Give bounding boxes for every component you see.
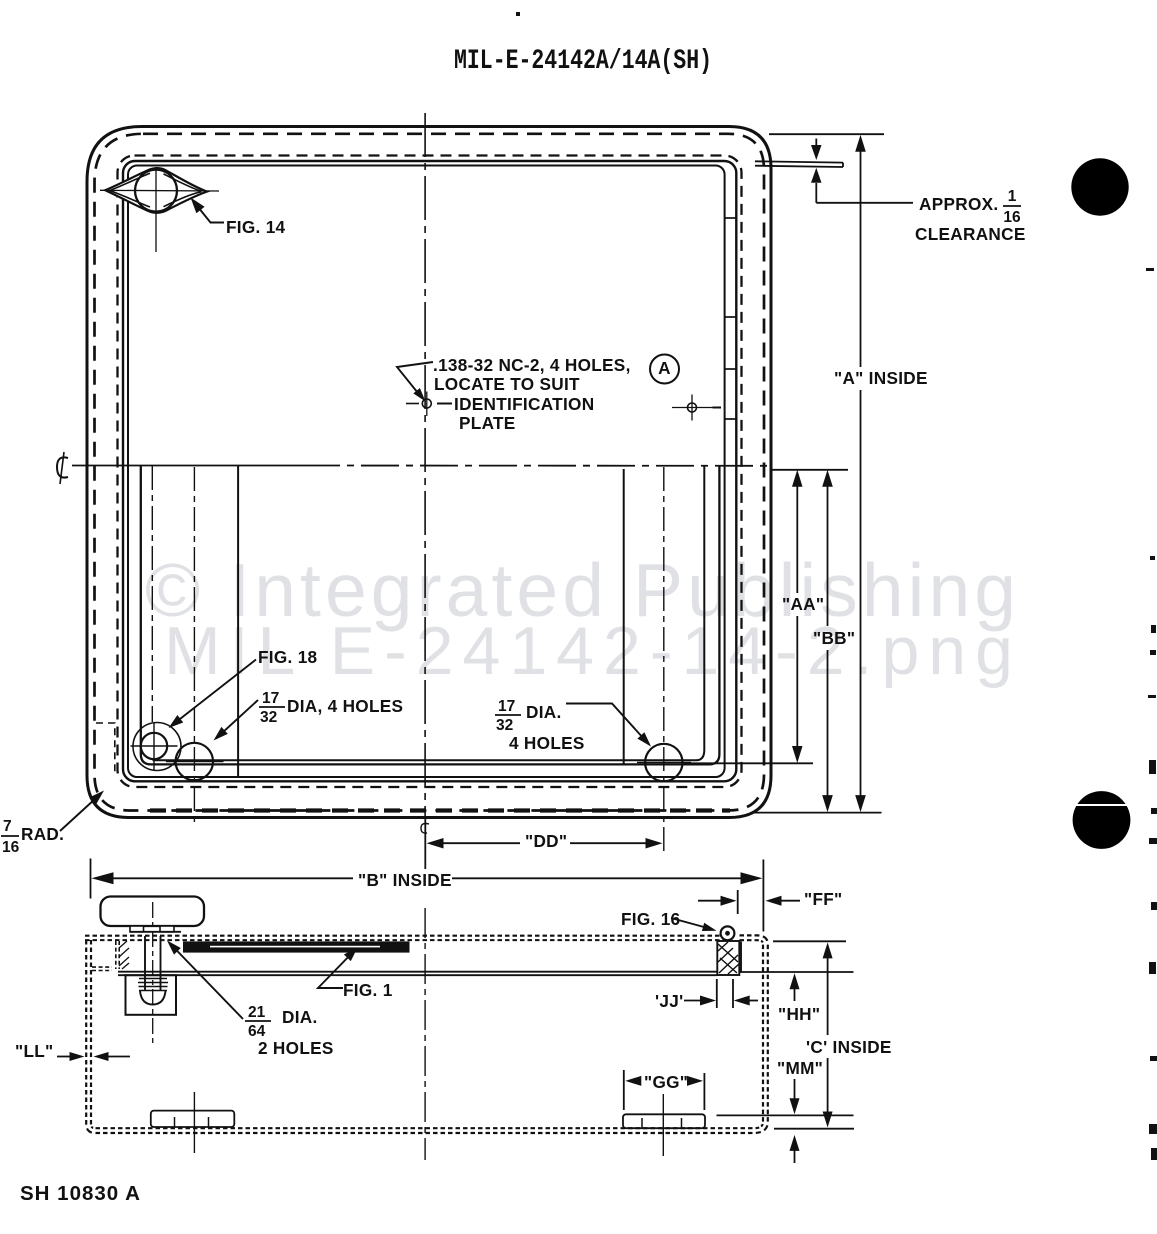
svg-text:CLEARANCE: CLEARANCE bbox=[915, 224, 1026, 244]
svg-text:32: 32 bbox=[496, 717, 513, 734]
svg-text:"AA": "AA" bbox=[782, 594, 824, 614]
svg-text:IDENTIFICATION: IDENTIFICATION bbox=[454, 394, 594, 414]
svg-text:.138-32 NC-2, 4 HOLES,: .138-32 NC-2, 4 HOLES, bbox=[433, 355, 631, 375]
svg-text:"DD": "DD" bbox=[525, 831, 567, 851]
svg-text:17: 17 bbox=[262, 690, 279, 707]
svg-text:RAD.: RAD. bbox=[21, 824, 64, 844]
svg-text:FIG. 14: FIG. 14 bbox=[226, 217, 286, 237]
svg-text:APPROX.: APPROX. bbox=[919, 194, 998, 214]
svg-text:DIA.: DIA. bbox=[282, 1007, 318, 1027]
svg-text:'C' INSIDE: 'C' INSIDE bbox=[806, 1037, 892, 1057]
svg-text:21: 21 bbox=[248, 1004, 266, 1021]
svg-text:"FF": "FF" bbox=[804, 889, 843, 909]
svg-text:7: 7 bbox=[3, 818, 12, 835]
svg-text:A: A bbox=[658, 358, 671, 378]
svg-text:"A" INSIDE: "A" INSIDE bbox=[834, 368, 928, 388]
svg-text:PLATE: PLATE bbox=[459, 413, 516, 433]
svg-text:1: 1 bbox=[1008, 188, 1017, 205]
svg-text:17: 17 bbox=[498, 698, 515, 715]
svg-text:"GG": "GG" bbox=[644, 1072, 688, 1092]
svg-text:LOCATE TO SUIT: LOCATE TO SUIT bbox=[434, 374, 580, 394]
svg-text:4 HOLES: 4 HOLES bbox=[509, 733, 585, 753]
svg-text:"B" INSIDE: "B" INSIDE bbox=[358, 870, 452, 890]
svg-text:'JJ': 'JJ' bbox=[655, 991, 684, 1011]
svg-text:MIL-E-24142A/14A(SH): MIL-E-24142A/14A(SH) bbox=[454, 46, 712, 77]
svg-text:"LL": "LL" bbox=[15, 1041, 54, 1061]
svg-text:SH 10830 A: SH 10830 A bbox=[20, 1182, 141, 1205]
svg-text:16: 16 bbox=[2, 839, 20, 856]
svg-text:"HH": "HH" bbox=[778, 1004, 820, 1024]
svg-text:FIG. 1: FIG. 1 bbox=[343, 980, 393, 1000]
svg-text:"BB": "BB" bbox=[813, 628, 855, 648]
svg-text:FIG. 16: FIG. 16 bbox=[621, 909, 680, 929]
svg-text:FIG. 18: FIG. 18 bbox=[258, 647, 318, 667]
svg-text:DIA, 4 HOLES: DIA, 4 HOLES bbox=[287, 696, 403, 716]
svg-text:DIA.: DIA. bbox=[526, 702, 562, 722]
svg-text:"MM": "MM" bbox=[777, 1058, 823, 1078]
svg-text:32: 32 bbox=[260, 709, 277, 726]
svg-text:2 HOLES: 2 HOLES bbox=[258, 1038, 334, 1058]
